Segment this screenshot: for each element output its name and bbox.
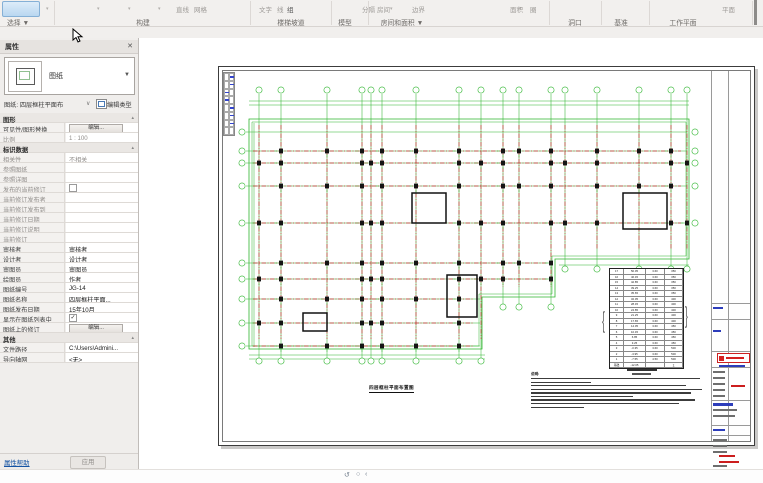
ribbon-ghost-tool[interactable]: 网格 <box>194 4 207 14</box>
property-value[interactable]: 设计者 <box>66 253 138 262</box>
property-value[interactable]: 不相关 <box>66 153 138 162</box>
property-label: 审核者 <box>0 243 65 252</box>
revision-strip-table <box>223 72 235 136</box>
panel-separator <box>549 1 550 25</box>
property-label: 图纸上的修订 <box>0 323 65 332</box>
property-label: 当前修订发布到 <box>0 203 65 212</box>
property-row: 导向轴网<无> <box>0 353 138 363</box>
notes-line <box>531 378 700 379</box>
property-row: 绘图员作者 <box>0 273 138 283</box>
property-value[interactable]: 15年10月 <box>66 303 138 312</box>
property-value[interactable] <box>66 233 138 242</box>
property-section-header[interactable]: 其他▴ <box>0 333 138 343</box>
titleblock-field <box>713 383 725 385</box>
property-label: 当前修订 <box>0 233 65 242</box>
property-value[interactable]: C:\Users\Admini... <box>66 343 138 352</box>
property-value[interactable]: 编辑... <box>66 323 138 332</box>
property-value[interactable]: 1 : 100 <box>66 133 138 142</box>
property-value[interactable]: JG-14 <box>66 283 138 292</box>
storey-height-schedule: 1750.053.603501646.453.603501542.853.603… <box>609 268 684 369</box>
property-label: 当前修订说明 <box>0 223 65 232</box>
status-collapse-icon[interactable]: ‹ <box>365 471 367 478</box>
chevron-down-icon[interactable]: ▼ <box>124 72 130 78</box>
titleblock-field <box>713 371 725 373</box>
property-value[interactable]: 四层框柱平面... <box>66 293 138 302</box>
ribbon-panel-label[interactable]: 洞口 <box>568 17 582 27</box>
property-value[interactable] <box>66 213 138 222</box>
property-value[interactable] <box>66 193 138 202</box>
schedule-cell: ∑ <box>665 363 683 369</box>
section-collapse-icon[interactable]: ▴ <box>131 115 134 121</box>
titleblock-blue-text <box>713 330 721 332</box>
property-row: 图纸编号JG-14 <box>0 283 138 293</box>
edit-button[interactable]: 编辑... <box>69 324 123 332</box>
property-row: 比例1 : 100 <box>0 133 138 143</box>
chevron-down-icon[interactable]: ▾ <box>128 6 131 12</box>
revision-cell <box>229 96 234 104</box>
property-row: 审核者审核者 <box>0 243 138 253</box>
property-label: 参照详图 <box>0 173 65 182</box>
property-label: 比例 <box>0 133 65 142</box>
ribbon-ghost-tool[interactable]: 房间 <box>377 4 390 14</box>
chevron-down-icon[interactable]: ▾ <box>97 6 100 12</box>
property-label: 审图员 <box>0 263 65 272</box>
property-label: 可见性/图形替换 <box>0 123 65 132</box>
plan-view-title: 四层框柱平面布置图 <box>369 385 414 393</box>
sheet-type-icon <box>8 61 42 92</box>
titleblock-divider <box>711 71 712 441</box>
titleblock-blue-text <box>713 403 733 406</box>
property-row: 文件路径C:\Users\Admini... <box>0 343 138 353</box>
property-value[interactable] <box>66 173 138 182</box>
property-row: 设计者设计者 <box>0 253 138 263</box>
property-label: 当前修订发布者 <box>0 193 65 202</box>
schedule-row: 基础-12.05∑ <box>610 363 683 369</box>
notes-line <box>531 382 591 383</box>
section-collapse-icon[interactable]: ▴ <box>131 145 134 151</box>
titleblock-red-text <box>731 385 745 387</box>
ribbon-ghost-tool[interactable]: 圈 <box>530 4 537 14</box>
property-row: 可见性/图形替换编辑... <box>0 123 138 133</box>
property-value[interactable]: 编辑... <box>66 123 138 132</box>
status-lightbulb-icon[interactable]: ○ <box>356 471 360 478</box>
edit-button[interactable]: 编辑... <box>69 124 123 132</box>
titleblock-red-text <box>719 455 735 457</box>
edit-type-button[interactable]: 编辑类型 <box>96 98 138 109</box>
titleblock-red-text <box>719 461 739 463</box>
revision-cell <box>229 81 234 89</box>
properties-footer: 属性帮助 应用 <box>0 453 138 470</box>
property-value[interactable] <box>66 223 138 232</box>
property-label: 参照图纸 <box>0 163 65 172</box>
property-label: 显示在图纸列表中 <box>0 313 65 322</box>
property-value[interactable] <box>66 163 138 172</box>
notes-line <box>531 399 695 400</box>
ribbon: 直线网格文字线组分隔房间边界面积圈平面▾▾▾▾▾▾ 构建楼梯坡道模型房间和面积 … <box>0 0 763 27</box>
property-row: 图纸名称四层框柱平面... <box>0 293 138 303</box>
ribbon-panel-label[interactable]: 工作平面 <box>669 17 696 27</box>
panel-separator <box>649 1 650 25</box>
property-label: 导向轴网 <box>0 353 65 362</box>
modify-button[interactable] <box>2 1 40 17</box>
ribbon-panel-select[interactable]: 选择 ▼ <box>7 17 29 27</box>
properties-header[interactable]: 属性 ✕ <box>0 40 138 54</box>
titleblock-blue-text <box>719 365 745 367</box>
type-selector[interactable]: 图纸 ▼ <box>4 57 135 95</box>
panel-separator <box>54 1 55 25</box>
titleblock-field <box>713 465 727 467</box>
property-row: 相关性不相关 <box>0 153 138 163</box>
titleblock-rule <box>711 351 750 352</box>
notes-line <box>531 407 584 408</box>
notes-line <box>531 403 679 404</box>
ribbon-panel-label[interactable]: 楼梯坡道 <box>277 17 304 27</box>
property-row: 参照详图 <box>0 173 138 183</box>
ribbon-ghost-tool[interactable]: 文字 <box>259 4 272 14</box>
panel-separator <box>331 1 332 25</box>
property-label: 文件路径 <box>0 343 65 352</box>
property-section-header[interactable]: 标识数据▴ <box>0 143 138 153</box>
properties-help-link[interactable]: 属性帮助 <box>4 458 30 467</box>
titleblock-rule <box>711 303 750 304</box>
revision-cell <box>229 73 234 81</box>
property-label: 发布的当前修订 <box>0 183 65 192</box>
property-row: 审图员审图员 <box>0 263 138 273</box>
schedule-left-bracket: { <box>602 307 604 333</box>
ribbon-ghost-tool[interactable]: 边界 <box>412 4 425 14</box>
notes-line <box>531 385 686 386</box>
titleblock-blue-text <box>713 429 725 431</box>
revision-cell <box>229 127 234 135</box>
instance-selector-label[interactable]: 图纸: 四层框柱平面布 <box>4 100 63 109</box>
titleblock-field <box>713 451 727 453</box>
section-collapse-icon[interactable]: ▴ <box>131 335 134 341</box>
property-row: 发布的当前修订 <box>0 183 138 193</box>
property-label: 图纸名称 <box>0 293 65 302</box>
property-row: 图纸发布日期15年10月 <box>0 303 138 313</box>
property-row: 当前修订发布到 <box>0 203 138 213</box>
titleblock-field <box>713 389 725 391</box>
property-row: 当前修订说明 <box>0 223 138 233</box>
ribbon-scroll-handle[interactable] <box>754 0 757 25</box>
property-value[interactable]: 审核者 <box>66 243 138 252</box>
ribbon-ghost-tool[interactable]: 线 <box>277 4 284 14</box>
titleblock-rule <box>711 425 750 426</box>
revision-cell <box>229 89 234 97</box>
titleblock-field <box>713 445 727 447</box>
chevron-down-icon[interactable]: ▾ <box>390 6 393 12</box>
notes-line <box>531 392 691 393</box>
property-row: 当前修订 <box>0 233 138 243</box>
revit-app-window: 直线网格文字线组分隔房间边界面积圈平面▾▾▾▾▾▾ 构建楼梯坡道模型房间和面积 … <box>0 0 763 483</box>
checkbox[interactable]: ✓ <box>69 314 77 322</box>
titleblock-rule <box>711 435 750 436</box>
schedule-cell: 基础 <box>610 363 624 369</box>
mouse-cursor <box>72 28 84 44</box>
status-bar: ↺ ○ ‹ <box>0 469 763 483</box>
titleblock-rule <box>711 319 750 320</box>
notes-title: 说明: <box>531 372 707 377</box>
property-grid: 图形▴可见性/图形替换编辑...比例1 : 100标识数据▴相关性不相关参照图纸… <box>0 113 138 363</box>
status-sync-icon[interactable]: ↺ <box>344 471 350 479</box>
property-label: 绘图员 <box>0 273 65 282</box>
titleblock-field <box>713 409 737 411</box>
general-notes-block: 说明: <box>531 372 707 410</box>
property-label: 当前修订日期 <box>0 213 65 222</box>
schedule-cell <box>646 363 665 369</box>
revision-cell <box>229 120 234 128</box>
property-label: 图纸编号 <box>0 283 65 292</box>
chevron-down-icon[interactable]: ▾ <box>158 6 161 12</box>
ribbon-ghost-tool[interactable]: 平面 <box>722 4 735 14</box>
schedule-caption <box>627 369 657 371</box>
property-row: 参照图纸 <box>0 163 138 173</box>
properties-palette: 属性 ✕ 图纸 ▼ 图纸: 四层框柱平面布 ∨ 编辑类型 图形▴可见性/图形替换… <box>0 38 139 470</box>
property-row: 显示在图纸列表中✓ <box>0 313 138 323</box>
ribbon-ghost-tool[interactable]: 直线 <box>176 4 189 14</box>
edit-type-icon <box>96 99 107 109</box>
property-value[interactable]: 作者 <box>66 273 138 282</box>
titleblock-rule <box>711 400 750 401</box>
checkbox[interactable] <box>69 184 77 192</box>
company-logo <box>717 353 750 363</box>
property-row: 图纸上的修订编辑... <box>0 323 138 333</box>
property-value[interactable]: ✓ <box>66 313 138 322</box>
property-section-header[interactable]: 图形▴ <box>0 113 138 123</box>
panel-separator <box>250 1 251 25</box>
ribbon-panel-label[interactable]: 房间和面积 ▼ <box>381 17 424 27</box>
property-label: 相关性 <box>0 153 65 162</box>
property-value[interactable] <box>66 203 138 212</box>
property-value[interactable]: <无> <box>66 353 138 362</box>
revision-cell <box>229 104 234 112</box>
property-label: 设计者 <box>0 253 65 262</box>
titleblock-blue-text <box>713 307 723 309</box>
property-row: 当前修订日期 <box>0 213 138 223</box>
close-icon[interactable]: ✕ <box>127 42 133 50</box>
property-value[interactable] <box>66 183 138 192</box>
chevron-down-icon[interactable]: ▾ <box>519 6 522 12</box>
ribbon-panel-label[interactable]: 模型 <box>338 17 352 27</box>
panel-separator <box>601 1 602 25</box>
chevron-down-icon[interactable]: ∨ <box>86 100 91 107</box>
ribbon-ghost-tool[interactable]: 组 <box>287 4 294 14</box>
titleblock-field <box>713 415 735 417</box>
ribbon-panel-label[interactable]: 基准 <box>614 17 628 27</box>
schedule-cell: -12.05 <box>624 363 646 369</box>
schedule-right-bracket: } <box>685 302 687 328</box>
drawing-area[interactable]: 四层框柱平面布置图 1750.053.603501646.453.6035015… <box>139 38 763 470</box>
titleblock-rule <box>711 367 750 368</box>
property-row: 当前修订发布者 <box>0 193 138 203</box>
panel-separator <box>368 1 369 25</box>
notes-line <box>531 396 633 397</box>
property-value[interactable]: 审图员 <box>66 263 138 272</box>
titleblock-field <box>713 395 725 397</box>
apply-button[interactable]: 应用 <box>70 456 106 469</box>
properties-title: 属性 <box>5 42 19 52</box>
panel-separator <box>752 1 753 25</box>
ribbon-panel-label[interactable]: 构建 <box>136 17 150 27</box>
titleblock-divider <box>728 71 729 441</box>
titleblock-field <box>713 377 725 379</box>
property-label: 图纸发布日期 <box>0 303 65 312</box>
revision-cell <box>229 112 234 120</box>
titleblock-field <box>713 439 727 441</box>
type-selector-label: 图纸 <box>49 71 63 81</box>
chevron-down-icon[interactable]: ▾ <box>46 6 49 12</box>
sheet-view[interactable]: 四层框柱平面布置图 1750.053.603501646.453.6035015… <box>218 66 755 446</box>
instance-selector-row: 图纸: 四层框柱平面布 ∨ 编辑类型 <box>4 97 134 111</box>
notes-line <box>531 389 702 390</box>
